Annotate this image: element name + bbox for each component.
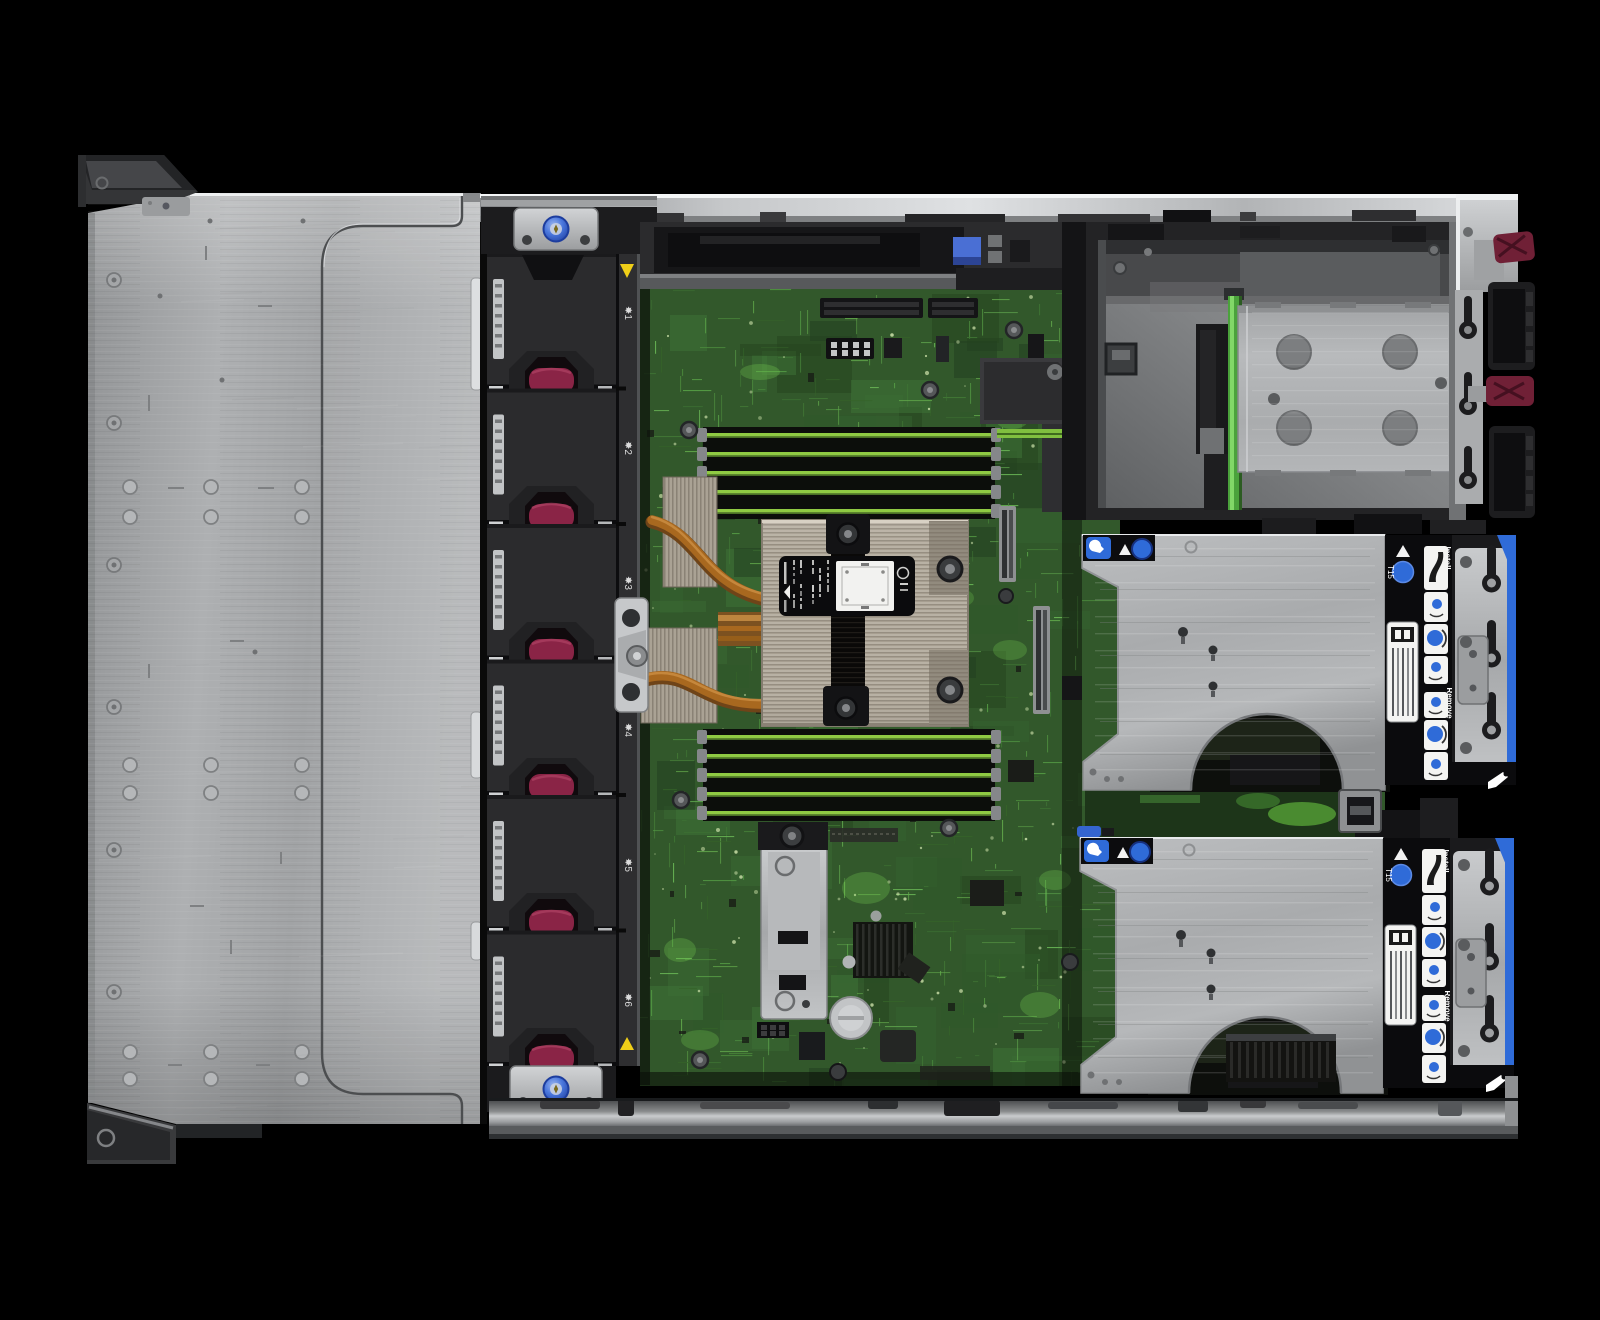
svg-text:✸2: ✸2 <box>622 441 633 455</box>
svg-text:✸1: ✸1 <box>622 306 633 320</box>
svg-text:✸3: ✸3 <box>622 576 633 590</box>
svg-text:✸5: ✸5 <box>622 858 633 872</box>
svg-text:✸4: ✸4 <box>622 723 633 737</box>
svg-text:T15: T15 <box>1386 565 1395 579</box>
svg-text:✸6: ✸6 <box>622 993 633 1007</box>
